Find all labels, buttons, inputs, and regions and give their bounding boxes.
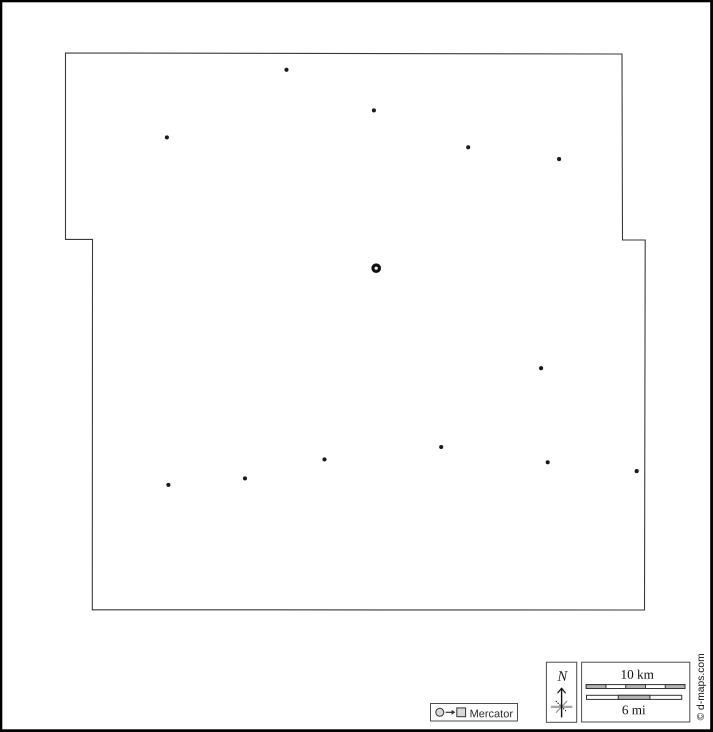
svg-text:© d-maps.com: © d-maps.com	[696, 653, 707, 720]
svg-text:6 mi: 6 mi	[622, 702, 646, 717]
svg-text:Mercator: Mercator	[470, 708, 514, 720]
svg-text:10 km: 10 km	[621, 667, 655, 682]
svg-text:N: N	[556, 669, 568, 685]
